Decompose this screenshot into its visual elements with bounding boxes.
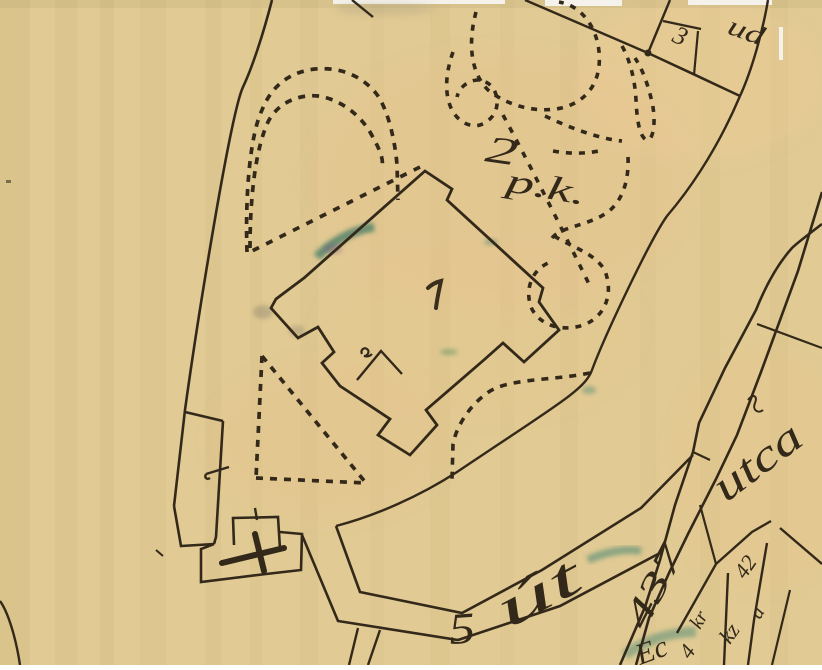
svg-text:5: 5 (447, 603, 476, 654)
